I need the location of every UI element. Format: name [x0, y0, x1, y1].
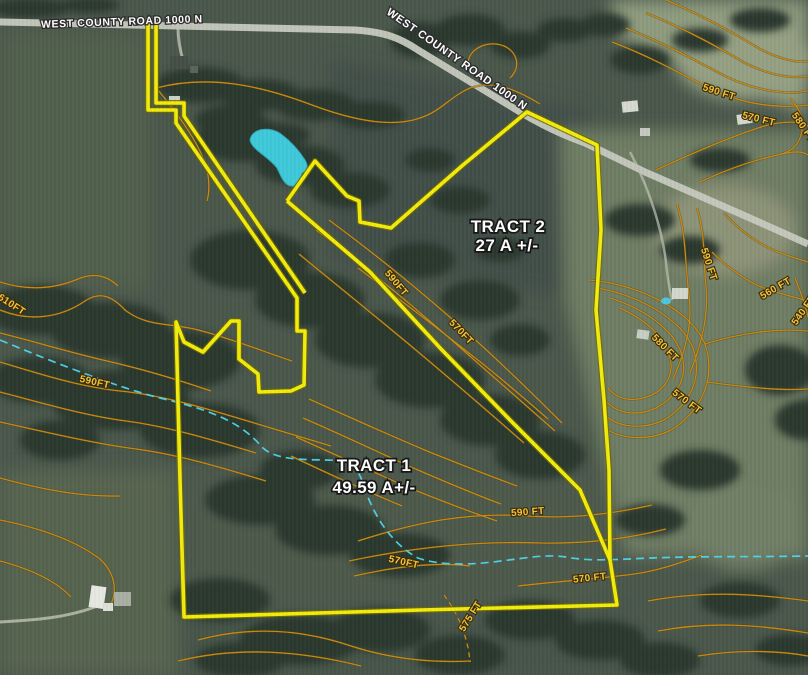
- house-right-middle: [672, 288, 688, 299]
- map-canvas: 590 FT 570 FT 580 FT 590 FT 560 FT 540 F…: [0, 0, 808, 675]
- house-top-right: [622, 100, 639, 113]
- contour-label: 590 FT: [511, 506, 545, 519]
- pool: [661, 298, 671, 305]
- outbuilding-right: [636, 329, 649, 340]
- house-top-left: [170, 56, 188, 69]
- shed-bottom-left: [103, 603, 113, 611]
- tract2-acres: 27 A +/-: [476, 236, 539, 255]
- shed-top-left: [190, 66, 198, 73]
- tract1-acres: 49.59 A+/-: [332, 478, 415, 497]
- tract1-name: TRACT 1: [337, 456, 412, 475]
- aerial-tract-map: 590 FT 570 FT 580 FT 590 FT 560 FT 540 F…: [0, 0, 808, 675]
- shed-top-right: [640, 128, 650, 136]
- tract2-name: TRACT 2: [471, 217, 546, 236]
- building-bottom-left: [114, 592, 131, 606]
